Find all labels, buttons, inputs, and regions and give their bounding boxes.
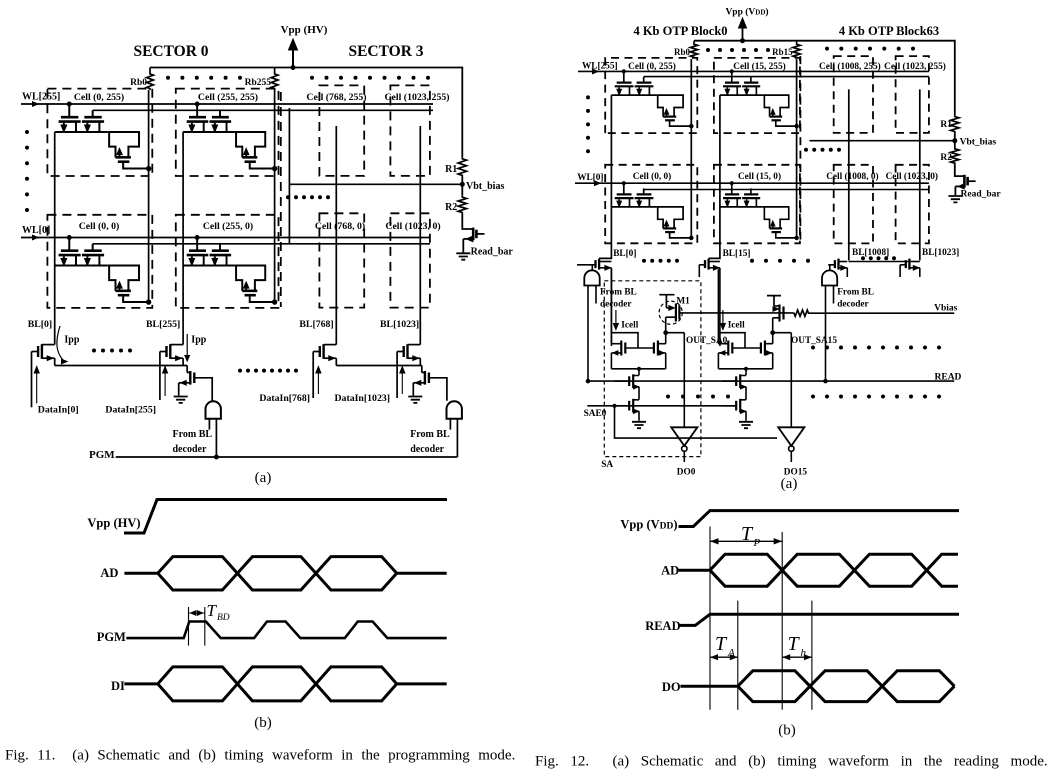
svg-text:Cell (0, 255): Cell (0, 255) — [74, 92, 124, 103]
svg-text:R1: R1 — [940, 120, 952, 130]
svg-text:Rb255: Rb255 — [245, 78, 272, 88]
svg-text:Vbias: Vbias — [934, 304, 958, 314]
svg-text:4 Kb OTP Block63: 4 Kb OTP Block63 — [839, 24, 939, 38]
svg-text:Vbt_bias: Vbt_bias — [960, 138, 997, 148]
svg-text:Vpp (VDD): Vpp (VDD) — [620, 518, 677, 532]
svg-text:R1: R1 — [445, 164, 457, 175]
svg-text:BL[1023]: BL[1023] — [922, 248, 959, 258]
svg-text:READ: READ — [645, 619, 680, 633]
svg-text:DO0: DO0 — [677, 468, 696, 478]
svg-text:From BL: From BL — [600, 288, 637, 298]
svg-text:AD: AD — [100, 566, 118, 580]
svg-text:T: T — [207, 601, 218, 620]
svg-text:Ipp: Ipp — [64, 335, 79, 346]
svg-text:DataIn[1023]: DataIn[1023] — [334, 393, 390, 404]
svg-text:Cell (768, 0): Cell (768, 0) — [315, 221, 365, 232]
svg-text:WL[255]: WL[255] — [22, 92, 60, 103]
svg-text:decoder: decoder — [173, 444, 207, 455]
svg-text:PGM: PGM — [89, 449, 115, 461]
svg-text:Cell (0, 0): Cell (0, 0) — [633, 171, 671, 182]
svg-text:h: h — [801, 647, 807, 659]
svg-text:4 Kb OTP Block0: 4 Kb OTP Block0 — [633, 24, 727, 38]
svg-text:Vpp (VDD): Vpp (VDD) — [725, 7, 768, 18]
svg-text:OUT_SA15: OUT_SA15 — [791, 336, 837, 346]
svg-text:M1: M1 — [676, 297, 690, 307]
svg-text:BL[0]: BL[0] — [613, 249, 636, 259]
svg-text:From BL: From BL — [410, 429, 450, 440]
svg-text:WL[0]: WL[0] — [577, 173, 603, 183]
svg-text:Vpp (HV): Vpp (HV) — [281, 24, 328, 36]
svg-text:Vpp (HV): Vpp (HV) — [87, 516, 140, 530]
svg-text:T: T — [788, 633, 801, 655]
svg-text:Cell (0, 255): Cell (0, 255) — [628, 61, 676, 72]
svg-text:DO: DO — [662, 680, 681, 694]
svg-text:Cell (255, 255): Cell (255, 255) — [198, 92, 258, 103]
svg-text:From BL: From BL — [837, 288, 874, 298]
svg-text:Cell (1023, 255): Cell (1023, 255) — [884, 61, 946, 72]
svg-text:BL[1023]: BL[1023] — [380, 319, 419, 330]
svg-text:Cell (1008, 0): Cell (1008, 0) — [826, 171, 878, 182]
svg-text:BL[0]: BL[0] — [28, 319, 53, 330]
svg-text:BL[255]: BL[255] — [146, 319, 180, 330]
svg-text:Vbt_bias: Vbt_bias — [466, 181, 504, 192]
svg-text:Cell (1008, 255): Cell (1008, 255) — [819, 61, 881, 72]
svg-text:Cell (15, 0): Cell (15, 0) — [738, 171, 781, 182]
svg-text:SECTOR 0: SECTOR 0 — [133, 43, 208, 60]
svg-text:BD: BD — [217, 613, 230, 623]
svg-text:Fig. 12. (a) Schematic and (b: Fig. 12. (a) Schematic and (b) timing wa… — [535, 754, 1048, 770]
svg-text:SECTOR 3: SECTOR 3 — [348, 43, 423, 60]
svg-text:Cell (0, 0): Cell (0, 0) — [79, 221, 120, 232]
svg-text:decoder: decoder — [410, 444, 444, 455]
svg-text:Cell (255, 0): Cell (255, 0) — [203, 221, 253, 232]
svg-text:DI: DI — [111, 679, 125, 693]
svg-text:DataIn[0]: DataIn[0] — [38, 405, 79, 416]
svg-text:From BL: From BL — [173, 429, 213, 440]
svg-text:R2: R2 — [940, 153, 952, 163]
svg-text:(a): (a) — [781, 476, 798, 492]
svg-text:Read_bar: Read_bar — [961, 190, 1002, 200]
svg-text:decoder: decoder — [837, 300, 869, 310]
svg-text:DataIn[255]: DataIn[255] — [105, 405, 156, 416]
svg-text:Rb15: Rb15 — [772, 47, 793, 57]
svg-text:Rb0: Rb0 — [674, 47, 691, 57]
svg-text:R2: R2 — [445, 202, 457, 213]
svg-text:A: A — [727, 647, 735, 659]
svg-text:Cell (1023, 0): Cell (1023, 0) — [886, 171, 938, 182]
svg-text:Cell (1023, 0): Cell (1023, 0) — [385, 221, 440, 232]
svg-text:Icell: Icell — [621, 321, 638, 331]
svg-text:T: T — [715, 633, 728, 655]
svg-text:PGM: PGM — [97, 630, 126, 644]
svg-text:Cell (15, 255): Cell (15, 255) — [733, 61, 785, 72]
svg-text:P: P — [753, 537, 761, 549]
svg-text:READ: READ — [935, 373, 962, 383]
svg-text:(a): (a) — [255, 470, 272, 486]
svg-text:SA: SA — [601, 460, 613, 470]
svg-text:T: T — [741, 523, 754, 545]
svg-text:Icell: Icell — [728, 321, 745, 331]
svg-text:BL[15]: BL[15] — [723, 249, 751, 259]
svg-text:WL[0]: WL[0] — [22, 225, 50, 236]
svg-text:(b): (b) — [254, 715, 272, 731]
svg-text:Cell (1023, 255): Cell (1023, 255) — [384, 92, 449, 103]
svg-text:DataIn[768]: DataIn[768] — [259, 393, 310, 404]
svg-text:Read_bar: Read_bar — [471, 247, 514, 258]
svg-text:Fig. 11. (a) Schematic and (b: Fig. 11. (a) Schematic and (b) timing wa… — [5, 748, 515, 764]
svg-text:SAE0: SAE0 — [584, 409, 607, 419]
svg-text:Cell (768, 255): Cell (768, 255) — [306, 92, 366, 103]
svg-text:AD: AD — [661, 564, 679, 578]
svg-text:WL[255]: WL[255] — [582, 62, 618, 72]
svg-text:(b): (b) — [778, 723, 796, 739]
svg-text:Rb0: Rb0 — [130, 78, 147, 88]
svg-text:BL[768]: BL[768] — [299, 319, 333, 330]
svg-text:Ipp: Ipp — [191, 335, 206, 346]
